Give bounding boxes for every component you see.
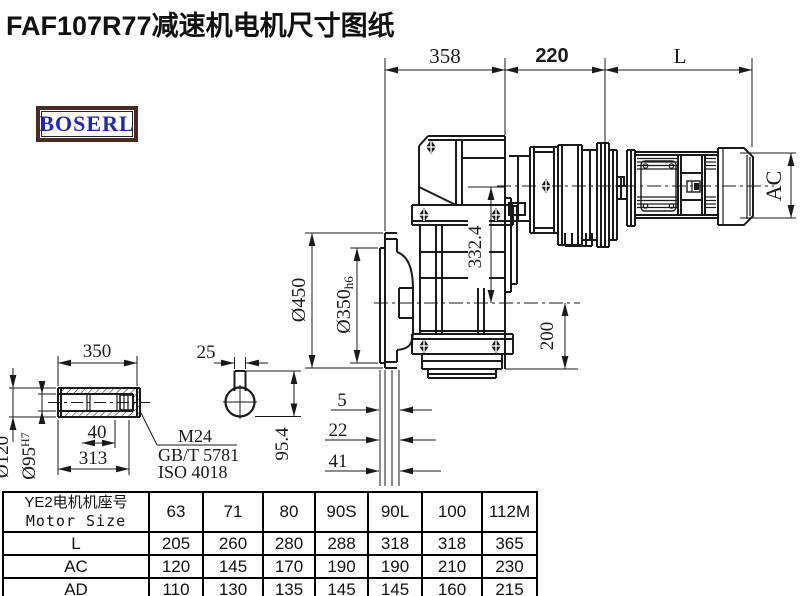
dim-flange-offsets: 5 22 41 bbox=[325, 370, 441, 486]
dim-22-label: 22 bbox=[329, 420, 348, 441]
size-col: 90L bbox=[368, 492, 422, 532]
cell: 210 bbox=[422, 555, 482, 578]
standard2-label: ISO 4018 bbox=[158, 462, 228, 482]
dim-332-label: 332.4 bbox=[465, 225, 486, 268]
dim-220-label: 220 bbox=[535, 45, 568, 67]
dim-d95-label: Ø95H7 bbox=[18, 432, 40, 479]
dim-41-label: 41 bbox=[329, 451, 348, 472]
dim-5-label: 5 bbox=[337, 390, 347, 411]
dim-len350-label: 350 bbox=[83, 341, 112, 362]
bolt-label: M24 bbox=[178, 426, 212, 446]
cell: 288 bbox=[315, 532, 368, 555]
cell: 365 bbox=[482, 532, 537, 555]
row-label: L bbox=[3, 532, 149, 555]
row-label: AC bbox=[3, 555, 149, 578]
size-col: 100 bbox=[422, 492, 482, 532]
size-col: 90S bbox=[315, 492, 368, 532]
cell: 318 bbox=[368, 532, 422, 555]
cell: 190 bbox=[315, 555, 368, 578]
cell: 170 bbox=[263, 555, 315, 578]
technical-drawing: 358 220 L bbox=[0, 0, 800, 490]
dim-d25-label: 25 bbox=[197, 342, 216, 363]
dim-450-label: Ø450 bbox=[288, 278, 310, 322]
table-header-cn: YE2电机机座号 bbox=[4, 494, 148, 512]
cell: 145 bbox=[368, 578, 422, 596]
cell: 205 bbox=[149, 532, 203, 555]
cell: 215 bbox=[482, 578, 537, 596]
dim-d120-label: Ø120 bbox=[0, 436, 13, 478]
dim-350-label: Ø350h6 bbox=[333, 276, 356, 334]
bell-adapter bbox=[509, 143, 627, 247]
top-dimensions: 358 220 L bbox=[385, 44, 752, 231]
dim-d954-label: 95.4 bbox=[272, 427, 293, 461]
table-row-AD: AD 110 130 135 145 145 160 215 bbox=[3, 578, 537, 596]
cell: 130 bbox=[203, 578, 263, 596]
hollow-shaft-detail bbox=[48, 388, 150, 417]
shaft-section-detail: 25 95.4 bbox=[197, 342, 302, 461]
motor-size-table: YE2电机机座号 Motor Size 63 71 80 90S 90L 100… bbox=[2, 491, 538, 596]
output-flange bbox=[380, 233, 413, 368]
size-col: 112M bbox=[482, 492, 537, 532]
cell: 280 bbox=[263, 532, 315, 555]
dim-flange-diameters: Ø450 Ø350h6 bbox=[288, 233, 383, 368]
table-row-L: L 205 260 280 288 318 318 365 bbox=[3, 532, 537, 555]
cell: 110 bbox=[149, 578, 203, 596]
dim-L-label: L bbox=[674, 44, 687, 68]
row-label: AD bbox=[3, 578, 149, 596]
dim-d40-label: 40 bbox=[88, 422, 107, 443]
cell: 145 bbox=[203, 555, 263, 578]
cell: 160 bbox=[422, 578, 482, 596]
size-col: 71 bbox=[203, 492, 263, 532]
cell: 318 bbox=[422, 532, 482, 555]
motor bbox=[627, 148, 753, 226]
cell: 145 bbox=[315, 578, 368, 596]
drawing-page: FAF107R77减速机电机尺寸图纸 BOSERL 35 bbox=[0, 0, 800, 596]
table-header-row: YE2电机机座号 Motor Size 63 71 80 90S 90L 100… bbox=[3, 492, 537, 532]
cell: 260 bbox=[203, 532, 263, 555]
dim-200: 200 bbox=[505, 303, 578, 369]
cell: 230 bbox=[482, 555, 537, 578]
table-row-AC: AC 120 145 170 190 190 210 230 bbox=[3, 555, 537, 578]
dim-len313-label: 313 bbox=[79, 448, 108, 469]
size-col: 63 bbox=[149, 492, 203, 532]
cell: 135 bbox=[263, 578, 315, 596]
dim-200-label: 200 bbox=[537, 322, 558, 351]
size-col: 80 bbox=[263, 492, 315, 532]
dim-AC-label: AC bbox=[761, 171, 786, 202]
table-header-en: Motor Size bbox=[4, 512, 148, 530]
cell: 190 bbox=[368, 555, 422, 578]
table-header-motor-size: YE2电机机座号 Motor Size bbox=[3, 492, 149, 532]
cell: 120 bbox=[149, 555, 203, 578]
dim-358-label: 358 bbox=[429, 44, 461, 68]
